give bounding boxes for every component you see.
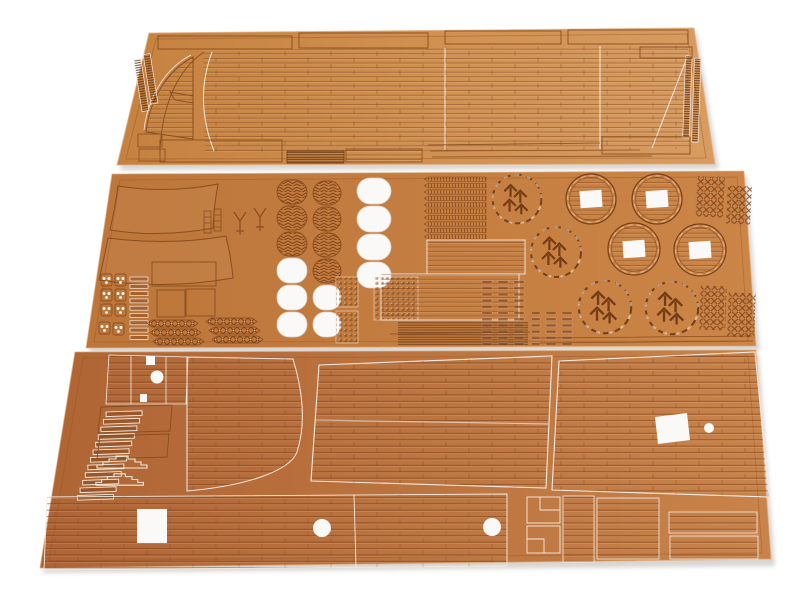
square-cutout [688,241,711,259]
planked-panel-topleft [106,355,188,404]
square-cutout [146,356,155,365]
wood-sheet-middle [86,171,756,348]
wood-sheet-bottom [40,350,771,570]
product-photo: Laser-cut wooden model ship deck sheets … [0,0,800,600]
wood-sheet-top [117,28,715,165]
dark-planked-strip [287,151,344,163]
laser-cut-sheets-photo: Product photo: three laser-cut wooden sh… [0,0,800,600]
square-cutout [622,240,645,258]
circle-cutout [313,519,331,537]
plank-field [203,45,690,152]
circle-cutout [704,423,714,433]
ladder-rung-column [130,277,148,339]
square-cutout [579,190,602,208]
circle-cutout [151,371,164,384]
central-deck-section [311,356,552,488]
right-deck-section [552,352,769,497]
rectangle-cutout [137,509,167,543]
square-cutout [645,190,668,208]
square-cutout [655,413,690,444]
square-cutout [140,394,147,402]
bottom-deck-strip [44,494,507,570]
circle-cutout [483,518,501,536]
